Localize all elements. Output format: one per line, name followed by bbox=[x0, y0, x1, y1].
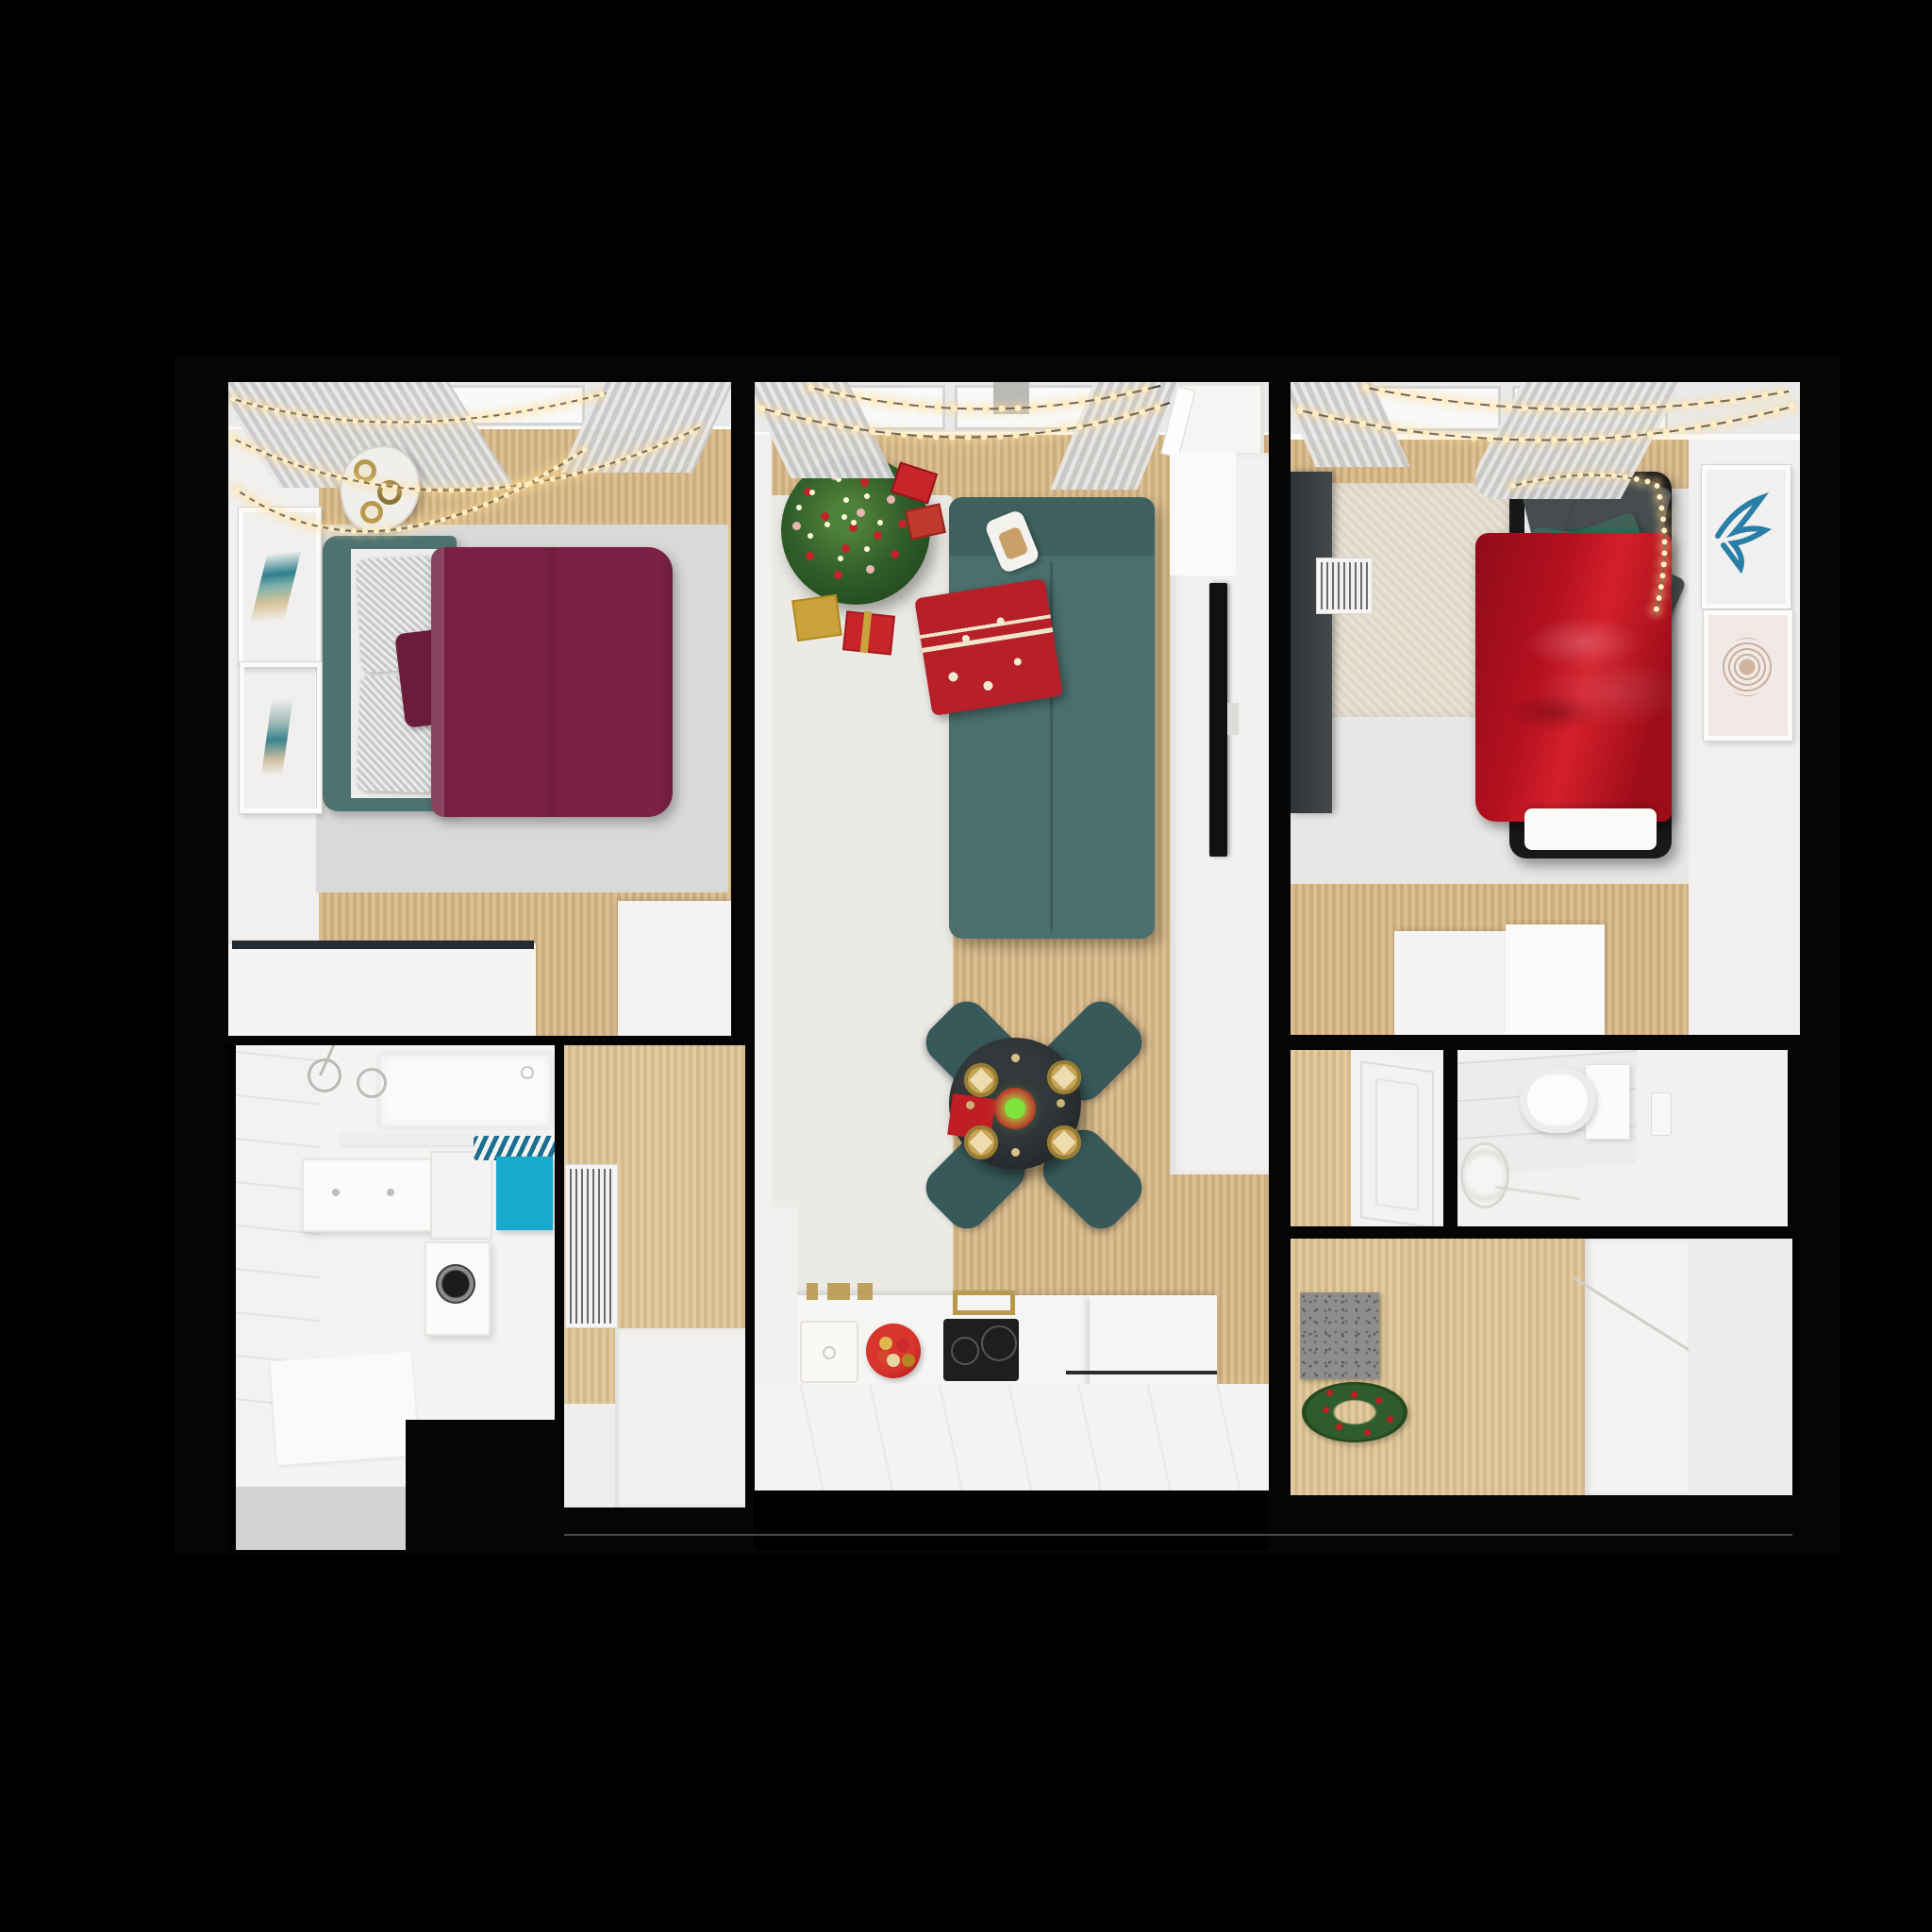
flush-plate bbox=[1651, 1092, 1672, 1136]
room-living bbox=[755, 382, 1269, 1491]
wall-right-horizontal bbox=[1291, 1035, 1800, 1050]
wood-floor bbox=[1291, 1050, 1351, 1226]
round-washbasin bbox=[1460, 1142, 1509, 1208]
wall-toilet-right bbox=[1788, 1050, 1800, 1239]
string-lights bbox=[228, 382, 731, 1036]
molding-wall-panel bbox=[1351, 1050, 1443, 1226]
washer-door bbox=[436, 1264, 475, 1304]
vanity-cabinet bbox=[302, 1158, 434, 1232]
room-corridor bbox=[564, 1045, 745, 1507]
wall-left-horizontal bbox=[228, 1036, 731, 1045]
string-lights bbox=[1291, 382, 1800, 1035]
hall-upper-nook bbox=[1291, 1050, 1443, 1226]
vanity-knob bbox=[332, 1189, 340, 1196]
hall-closet bbox=[1585, 1239, 1689, 1495]
room-hallway bbox=[1291, 1239, 1792, 1495]
side-cabinet bbox=[430, 1151, 492, 1240]
wall-leftbed-living bbox=[731, 357, 755, 1045]
wreath-berries bbox=[1326, 1390, 1333, 1396]
room-secondary-bedroom bbox=[1291, 382, 1800, 1035]
shower-tray bbox=[236, 1487, 406, 1550]
black-notch-bottom-left bbox=[406, 1420, 564, 1555]
floor-plan-render bbox=[0, 0, 1932, 1932]
wall-toilet-left bbox=[1443, 1050, 1457, 1239]
string-lights bbox=[755, 382, 1269, 1491]
wall-living-right bbox=[1269, 357, 1291, 1555]
cyan-towel bbox=[496, 1157, 553, 1230]
black-band-below-corridor bbox=[564, 1507, 755, 1555]
basin-shadow-lines bbox=[1495, 1186, 1580, 1200]
bathtub bbox=[375, 1050, 555, 1131]
white-door-panel bbox=[615, 1328, 745, 1507]
room-primary-bedroom bbox=[228, 382, 731, 1036]
wall-frame-left bbox=[175, 357, 228, 1555]
doormat bbox=[1300, 1292, 1379, 1379]
room-toilet bbox=[1457, 1050, 1788, 1226]
radiator-panel bbox=[566, 1165, 617, 1327]
wall-frame-right bbox=[1800, 357, 1840, 1555]
wall-frame-top bbox=[175, 357, 1840, 382]
toilet-bowl bbox=[1520, 1067, 1595, 1133]
black-band-below-hall bbox=[1291, 1495, 1800, 1555]
frame-edge-highlight bbox=[564, 1534, 1792, 1536]
shower-fixture bbox=[357, 1068, 387, 1098]
bath-mat bbox=[270, 1352, 418, 1465]
wall-toilet-bottom bbox=[1291, 1226, 1800, 1239]
tub-drain bbox=[521, 1066, 534, 1079]
wall-corridor-kitchen bbox=[745, 1036, 755, 1507]
christmas-wreath bbox=[1302, 1382, 1407, 1442]
closet-top-panel bbox=[1689, 1239, 1792, 1495]
